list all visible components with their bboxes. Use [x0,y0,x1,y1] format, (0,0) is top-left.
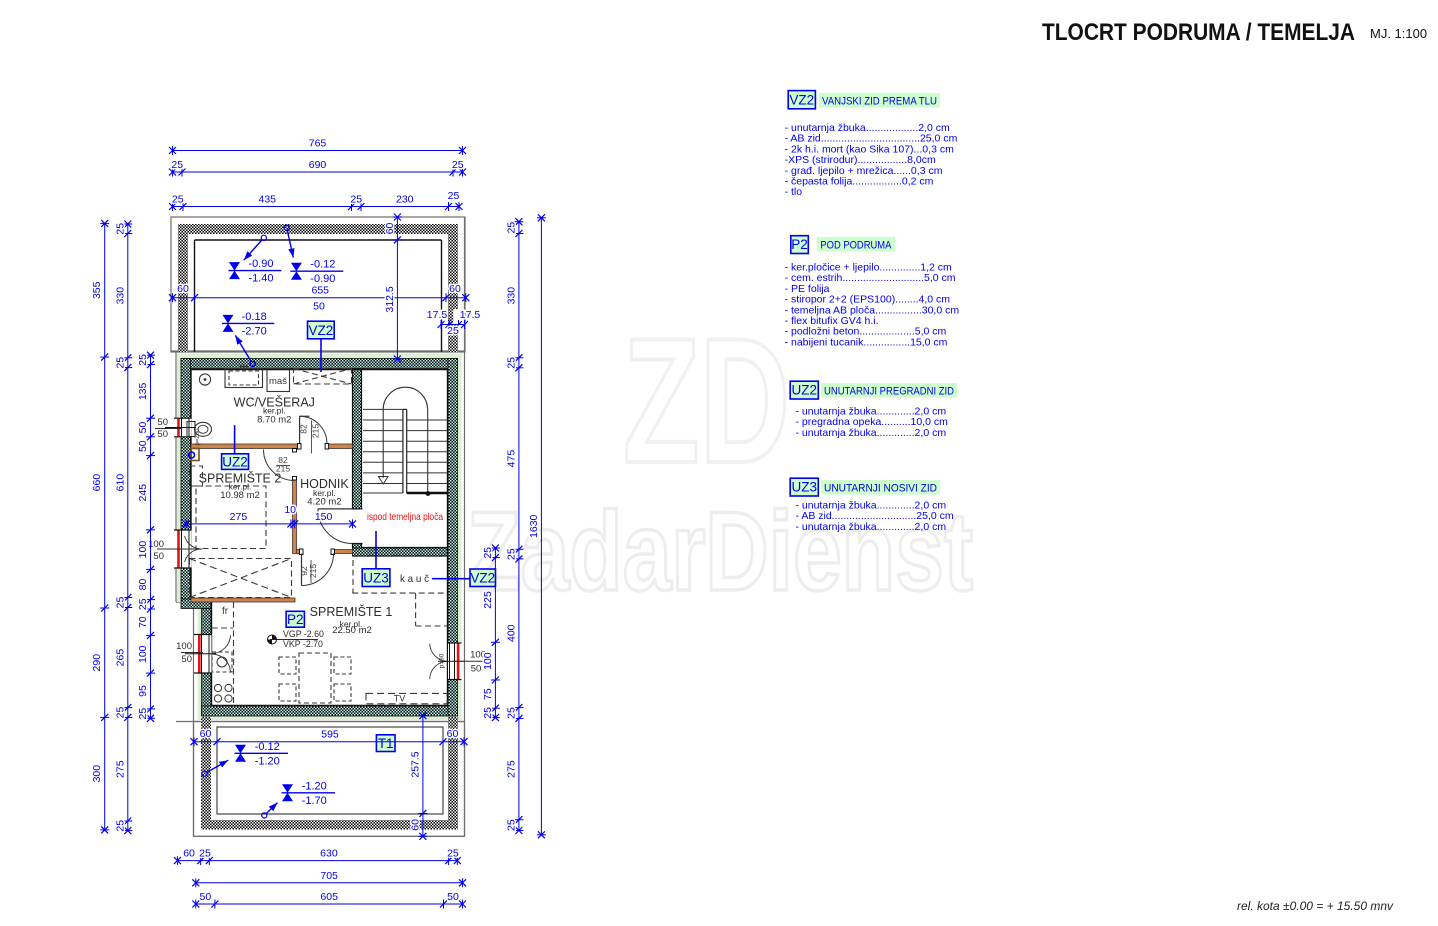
svg-text:215: 215 [276,464,290,474]
svg-text:50: 50 [153,551,164,562]
svg-text:355: 355 [91,281,103,299]
svg-text:60: 60 [409,819,421,831]
svg-text:50: 50 [157,417,168,428]
svg-text:-1.40: -1.40 [248,273,273,285]
svg-text:25: 25 [171,159,183,171]
svg-text:690: 690 [309,159,327,171]
svg-text:-0.90: -0.90 [248,258,273,270]
svg-text:215: 215 [308,564,318,578]
svg-text:10.98 m2: 10.98 m2 [220,490,260,501]
svg-text:-0.90: -0.90 [310,273,335,285]
svg-text:610: 610 [114,474,126,492]
svg-text:1630: 1630 [528,514,540,538]
svg-text:25: 25 [505,819,517,831]
svg-text:25: 25 [452,159,464,171]
svg-text:312.5: 312.5 [384,286,396,312]
svg-text:595: 595 [321,729,339,741]
svg-text:25: 25 [137,708,149,720]
svg-text:60: 60 [447,728,459,740]
svg-text:50: 50 [200,891,212,903]
svg-text:100: 100 [137,541,149,559]
svg-text:70: 70 [137,616,149,628]
svg-text:275: 275 [505,760,517,778]
svg-text:POD PODRUMA: POD PODRUMA [820,240,892,252]
svg-text:-2.70: -2.70 [242,325,267,337]
svg-text:UNUTARNJI PREGRADNI ZID: UNUTARNJI PREGRADNI ZID [824,386,954,398]
svg-text:maš: maš [269,376,287,387]
svg-text:135: 135 [137,382,149,400]
svg-text:-0.12: -0.12 [255,741,280,753]
svg-text:95: 95 [137,685,149,697]
svg-text:225: 225 [482,591,494,609]
svg-text:- unutarnja žbuka.............: - unutarnja žbuka.............2,0 cm [796,521,947,533]
svg-text:475: 475 [505,450,517,468]
svg-text:100: 100 [137,645,149,663]
svg-text:50: 50 [181,654,192,665]
svg-text:50: 50 [447,891,459,903]
svg-text:82: 82 [299,424,309,434]
svg-text:265: 265 [114,649,126,667]
svg-text:25: 25 [137,354,149,366]
svg-text:25: 25 [447,325,459,337]
svg-text:60: 60 [200,728,212,740]
svg-text:25: 25 [114,820,126,832]
svg-text:VGP -2.60: VGP -2.60 [283,629,324,639]
svg-text:230: 230 [396,194,414,206]
svg-text:765: 765 [309,138,327,150]
svg-text:50: 50 [157,429,168,440]
svg-text:TV: TV [394,694,406,704]
svg-text:TLOCRT PODRUMA / TEMELJA: TLOCRT PODRUMA / TEMELJA [1042,19,1355,46]
svg-text:VKP -2.70: VKP -2.70 [283,639,323,649]
svg-text:245: 245 [137,484,149,502]
svg-text:- tlo: - tlo [785,186,803,198]
svg-text:25: 25 [505,357,517,369]
svg-text:275: 275 [114,760,126,778]
svg-text:25: 25 [482,547,494,559]
svg-text:25: 25 [447,848,459,860]
svg-text:4.20 m2: 4.20 m2 [307,497,341,508]
svg-text:rel. kota ±0.00 = + 15.50 mnv: rel. kota ±0.00 = + 15.50 mnv [1237,899,1394,913]
svg-text:- nabijeni tucanik............: - nabijeni tucanik................15,0 c… [785,336,948,348]
svg-text:60: 60 [449,283,461,295]
svg-text:P2: P2 [791,237,808,252]
svg-text:60: 60 [177,283,189,295]
svg-text:-0.18: -0.18 [242,311,267,323]
svg-text:-0.12: -0.12 [310,259,335,271]
svg-text:655: 655 [311,285,329,297]
svg-text:UZ3: UZ3 [363,571,389,586]
svg-text:22.50 m2: 22.50 m2 [332,625,372,636]
svg-text:25: 25 [482,707,494,719]
svg-text:UZ2: UZ2 [791,383,817,398]
svg-text:25: 25 [199,848,211,860]
svg-text:300: 300 [91,765,103,783]
svg-text:75: 75 [482,688,494,700]
svg-text:- unutarnja žbuka.............: - unutarnja žbuka.............2,0 cm [796,427,947,439]
svg-text:fr: fr [222,606,229,617]
svg-text:VZ2: VZ2 [789,92,814,107]
svg-text:25: 25 [114,357,126,369]
svg-text:25: 25 [172,194,184,206]
svg-text:25: 25 [448,190,460,202]
svg-text:80: 80 [137,579,149,591]
svg-text:100: 100 [176,641,192,652]
svg-text:25: 25 [350,194,362,206]
svg-text:-1.70: -1.70 [302,795,327,807]
svg-text:SPREMIŠTE 1: SPREMIŠTE 1 [310,604,393,619]
svg-text:25: 25 [137,598,149,610]
svg-text:275: 275 [230,511,248,523]
svg-text:-1.20: -1.20 [302,780,327,792]
svg-text:17.5: 17.5 [460,309,481,321]
svg-text:50: 50 [137,440,149,452]
svg-text:P2: P2 [287,612,304,627]
svg-text:-1.20: -1.20 [255,755,280,767]
svg-text:UZ2: UZ2 [222,454,248,469]
svg-text:25: 25 [505,707,517,719]
svg-text:60: 60 [384,222,396,234]
svg-text:MJ. 1:100: MJ. 1:100 [1370,26,1427,41]
svg-text:605: 605 [320,891,338,903]
svg-text:150: 150 [315,511,333,523]
svg-text:p=90: p=90 [439,653,446,668]
svg-text:50: 50 [137,422,149,434]
svg-text:10: 10 [284,504,296,516]
svg-text:400: 400 [505,624,517,642]
svg-text:VANJSKI ZID PREMA TLU: VANJSKI ZID PREMA TLU [822,96,937,108]
svg-text:25: 25 [114,597,126,609]
svg-text:60: 60 [183,848,195,860]
svg-text:290: 290 [91,654,103,672]
svg-text:705: 705 [320,870,338,882]
svg-text:VZ2: VZ2 [308,323,333,338]
svg-text:215: 215 [311,424,321,438]
svg-text:25: 25 [114,707,126,719]
svg-text:25: 25 [505,222,517,234]
svg-text:UNUTARNJI NOSIVI ZID: UNUTARNJI NOSIVI ZID [824,483,937,495]
svg-text:100: 100 [482,652,494,670]
svg-text:435: 435 [258,194,276,206]
svg-text:50: 50 [313,301,325,313]
svg-text:17.5: 17.5 [427,309,448,321]
svg-text:257.5: 257.5 [409,751,421,777]
svg-text:330: 330 [505,287,517,305]
svg-text:25: 25 [114,223,126,235]
svg-text:k a u č: k a u č [400,573,429,585]
svg-text:- čepasta folija..............: - čepasta folija.................0,2 cm [785,176,934,188]
svg-text:8.70 m2: 8.70 m2 [257,415,291,426]
svg-text:p=200: p=200 [195,428,201,446]
svg-text:630: 630 [320,848,338,860]
svg-text:ZD: ZD [623,301,790,500]
svg-text:ispod temeljna ploča: ispod temeljna ploča [367,511,443,523]
svg-text:T1: T1 [378,736,394,751]
svg-text:VZ2: VZ2 [470,571,495,586]
svg-text:25: 25 [505,548,517,560]
svg-text:330: 330 [114,287,126,305]
svg-text:660: 660 [91,474,103,492]
svg-text:UZ3: UZ3 [791,480,817,495]
svg-text:50: 50 [471,664,482,675]
